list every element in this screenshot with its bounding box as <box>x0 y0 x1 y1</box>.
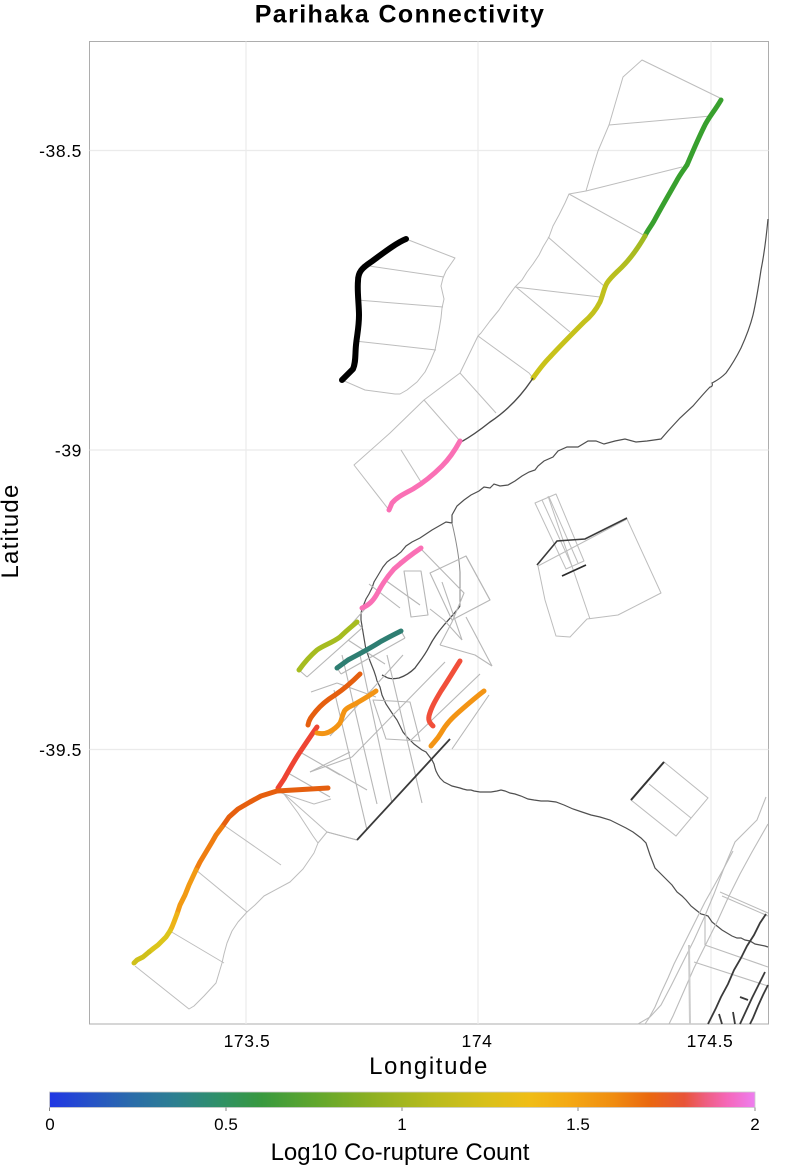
svg-text:-39: -39 <box>55 441 82 461</box>
svg-text:-38.5: -38.5 <box>39 141 82 161</box>
svg-text:2: 2 <box>750 1115 759 1134</box>
svg-text:174.5: 174.5 <box>687 1031 734 1051</box>
svg-text:-39.5: -39.5 <box>39 740 82 760</box>
svg-text:173.5: 173.5 <box>224 1031 271 1051</box>
svg-text:Longitude: Longitude <box>369 1053 489 1080</box>
svg-text:1.5: 1.5 <box>566 1115 590 1134</box>
svg-text:Log10 Co-rupture Count: Log10 Co-rupture Count <box>271 1139 530 1166</box>
svg-text:0.5: 0.5 <box>214 1115 238 1134</box>
svg-text:174: 174 <box>462 1031 493 1051</box>
svg-text:0: 0 <box>45 1115 54 1134</box>
svg-text:1: 1 <box>397 1115 406 1134</box>
svg-text:Latitude: Latitude <box>0 483 24 578</box>
svg-text:Parihaka Connectivity: Parihaka Connectivity <box>255 1 546 29</box>
